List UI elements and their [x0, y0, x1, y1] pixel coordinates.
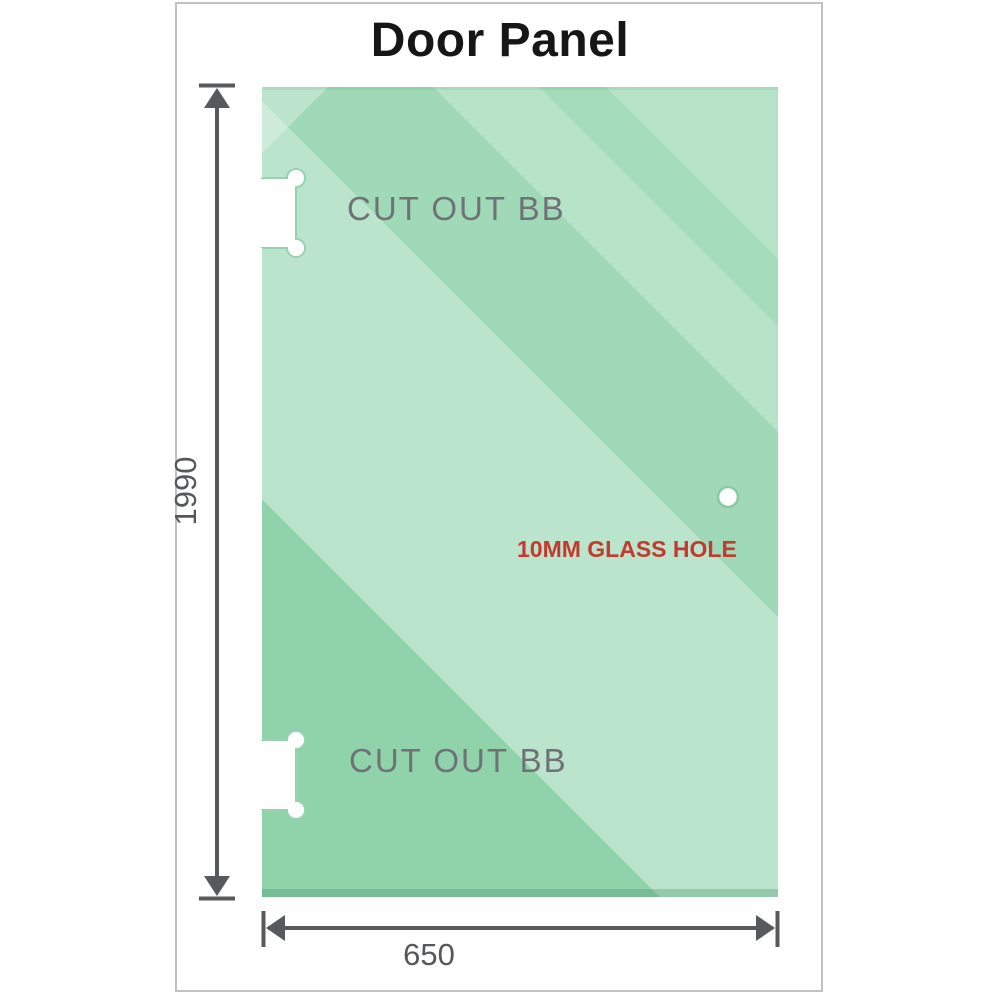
height-dimension-value: 1990 [168, 457, 204, 526]
width-dimension-value: 650 [403, 937, 455, 973]
diagram-overlay [0, 0, 1000, 1000]
height-dimension-line [199, 86, 235, 899]
cutout-label-bottom: CUT OUT BB [349, 742, 568, 780]
width-dimension-line [264, 911, 778, 947]
hinge-cutout-bottom-icon [254, 731, 305, 819]
door-panel-diagram: Door Panel [0, 0, 1000, 1000]
cutout-label-top: CUT OUT BB [347, 190, 566, 228]
glass-hole-icon [718, 487, 738, 507]
hinge-cutout-top-icon [254, 169, 305, 257]
glass-hole-label: 10MM GLASS HOLE [517, 536, 737, 563]
